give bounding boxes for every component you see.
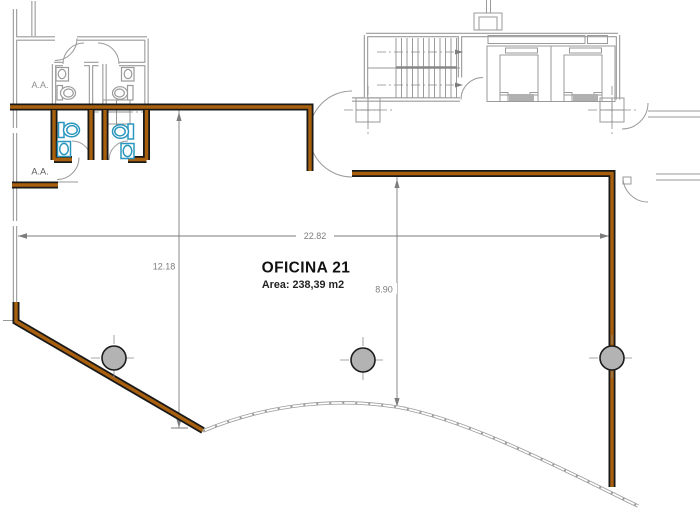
unit-walls <box>10 107 612 487</box>
elevator-counterweight-left <box>506 48 538 53</box>
columns <box>91 335 635 383</box>
column-icon <box>351 348 375 372</box>
dimension-label-width: 22.82 <box>304 231 327 241</box>
curtain-wall-curve <box>203 403 638 506</box>
stair-direction-arrow <box>455 83 463 88</box>
square-centerlines <box>90 86 636 136</box>
elevator-sill-left <box>509 94 534 101</box>
dim-arrow <box>600 233 609 238</box>
toilet-icon <box>115 89 125 97</box>
dimension-label-left-depth: 12.18 <box>153 261 176 271</box>
elevator-sill-right <box>573 94 598 101</box>
facade-curve <box>203 403 638 506</box>
room-name-label: OFICINA 21 <box>262 260 351 277</box>
elevator-jamb <box>564 93 572 102</box>
labels: A.A. A.A. OFICINA 21 Area: 238,39 m2 <box>31 80 350 291</box>
door-jamb <box>623 177 631 184</box>
annotation-aa-lower: A.A. <box>31 167 48 177</box>
floor-plan-canvas: 22.82 12.18 8.90 A.A. A.A. <box>0 0 700 515</box>
curtain-wall-joint <box>12 128 19 133</box>
sink-icon <box>123 145 132 156</box>
sink-icon <box>58 69 66 78</box>
sink-icon <box>60 143 69 154</box>
vent-shaft-inner <box>479 17 497 30</box>
elevator-jamb <box>500 93 508 102</box>
curtain-wall-panel-joints <box>203 403 638 506</box>
curtain-wall-curve-core <box>203 403 638 506</box>
elevator-cab-left <box>500 55 538 95</box>
curtain-wall-joint <box>12 221 19 226</box>
dim-arrow <box>18 233 27 238</box>
toilet-icon <box>67 126 77 135</box>
room-area-label: Area: 238,39 m2 <box>262 279 344 291</box>
sink-icon <box>124 69 132 78</box>
toilet-icon <box>64 89 74 97</box>
elevator-counterweight-right <box>570 48 602 53</box>
toilet-icon <box>128 86 134 101</box>
elevator-shaft-right <box>551 46 615 102</box>
column-icon <box>102 346 126 370</box>
toilet-icon <box>115 127 125 136</box>
wall-fill <box>10 107 612 487</box>
vent-shaft <box>474 13 502 30</box>
column-icon <box>600 346 624 370</box>
dim-arrow <box>176 112 181 121</box>
dimension-label-right-depth: 8.90 <box>375 284 393 294</box>
elevator-cab-right <box>564 55 602 95</box>
neighbor-bathroom-fixtures <box>56 68 134 101</box>
adjacent-structures <box>3 0 700 321</box>
dim-arrow <box>394 179 399 188</box>
elevator-shaft-left <box>487 46 551 102</box>
bathroom-fixtures <box>58 123 135 159</box>
annotation-aa-upper: A.A. <box>31 80 48 90</box>
floor-plan-svg: 22.82 12.18 8.90 A.A. A.A. <box>0 0 700 515</box>
